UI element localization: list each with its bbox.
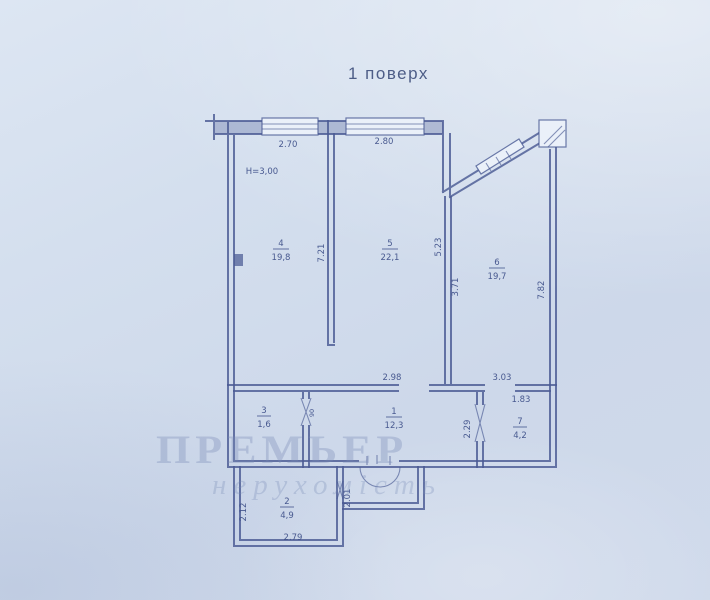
wall-pilaster: [234, 254, 243, 266]
room-area: 22,1: [381, 253, 400, 263]
dim-room7-depth: 2.29: [463, 420, 473, 439]
room-number: 2: [284, 497, 289, 507]
room-area: 1,6: [257, 420, 271, 430]
room-area: 19,8: [272, 253, 291, 263]
dim-door-width: 90: [308, 409, 316, 417]
dim-room4-depth: 7.21: [317, 244, 327, 263]
room-label-6: 6 19,7: [488, 258, 507, 282]
dim-right-wall: 7.82: [537, 281, 547, 300]
floor-plan-photo: 1 поверх: [0, 0, 710, 600]
window-right: [346, 118, 424, 135]
door-hatch-room7: [475, 404, 485, 442]
room-number: 6: [494, 258, 499, 268]
dim-balcony-left: 2.12: [239, 503, 249, 522]
dim-room7-width: 1.83: [512, 395, 531, 405]
porch-walls: [343, 467, 424, 509]
room-label-2-balcony: 2 4,9: [280, 497, 294, 521]
room-area: 4,2: [513, 431, 527, 441]
dim-window-left: 2.70: [279, 140, 298, 150]
room-label-3: 3 1,6: [257, 406, 271, 430]
room-label-5: 5 22,1: [381, 239, 400, 263]
dim-room5-width: 2.98: [383, 373, 402, 383]
room-label-1: 1 12,3: [385, 407, 404, 431]
window-left: [262, 118, 318, 135]
room-area: 19,7: [488, 272, 507, 282]
room-number: 7: [517, 417, 522, 427]
dim-room6-left: 5.23: [434, 238, 444, 257]
room-area: 4,9: [280, 511, 294, 521]
room-label-4: 4 19,8: [272, 239, 291, 263]
room-number: 1: [391, 407, 396, 417]
dim-room6-diagonal: 3.71: [451, 278, 461, 297]
dim-room6-width: 3.03: [493, 373, 512, 383]
height-note: Н=3,00: [246, 167, 278, 177]
room-number: 3: [261, 406, 266, 416]
dim-window-right: 2.80: [375, 137, 394, 147]
room-number: 5: [387, 239, 392, 249]
entrance-door-arc: [360, 467, 400, 487]
entrance-door-ticks: [367, 455, 390, 465]
dim-porch-depth: 2.01: [343, 489, 353, 508]
corner-block: [539, 120, 566, 147]
floor-plan-drawing: Н=3,00 2.70 2.80 2.98 3.03 1.83 2.79 7.2…: [0, 0, 710, 600]
room-label-7: 7 4,2: [513, 417, 527, 441]
dim-balcony-width: 2.79: [284, 533, 303, 543]
room-area: 12,3: [385, 421, 404, 431]
room-number: 4: [278, 239, 283, 249]
